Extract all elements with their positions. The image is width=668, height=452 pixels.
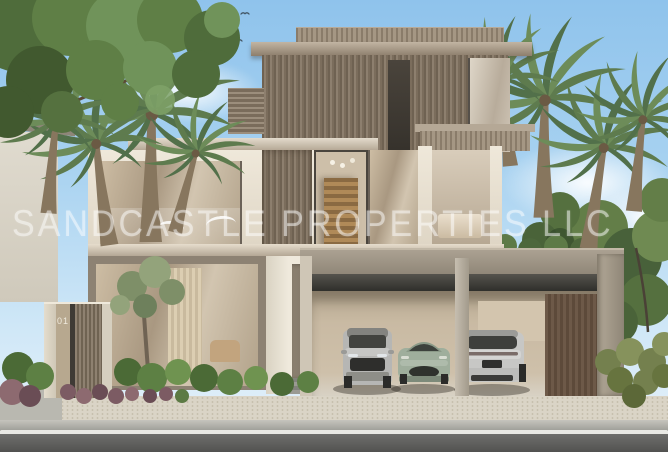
ornamental-grasses [595, 332, 668, 408]
watermark: SANDCASTLE PROPERTIES LLC [12, 203, 614, 245]
property-photo: 01 [0, 0, 668, 452]
front-shrubs [0, 352, 319, 407]
